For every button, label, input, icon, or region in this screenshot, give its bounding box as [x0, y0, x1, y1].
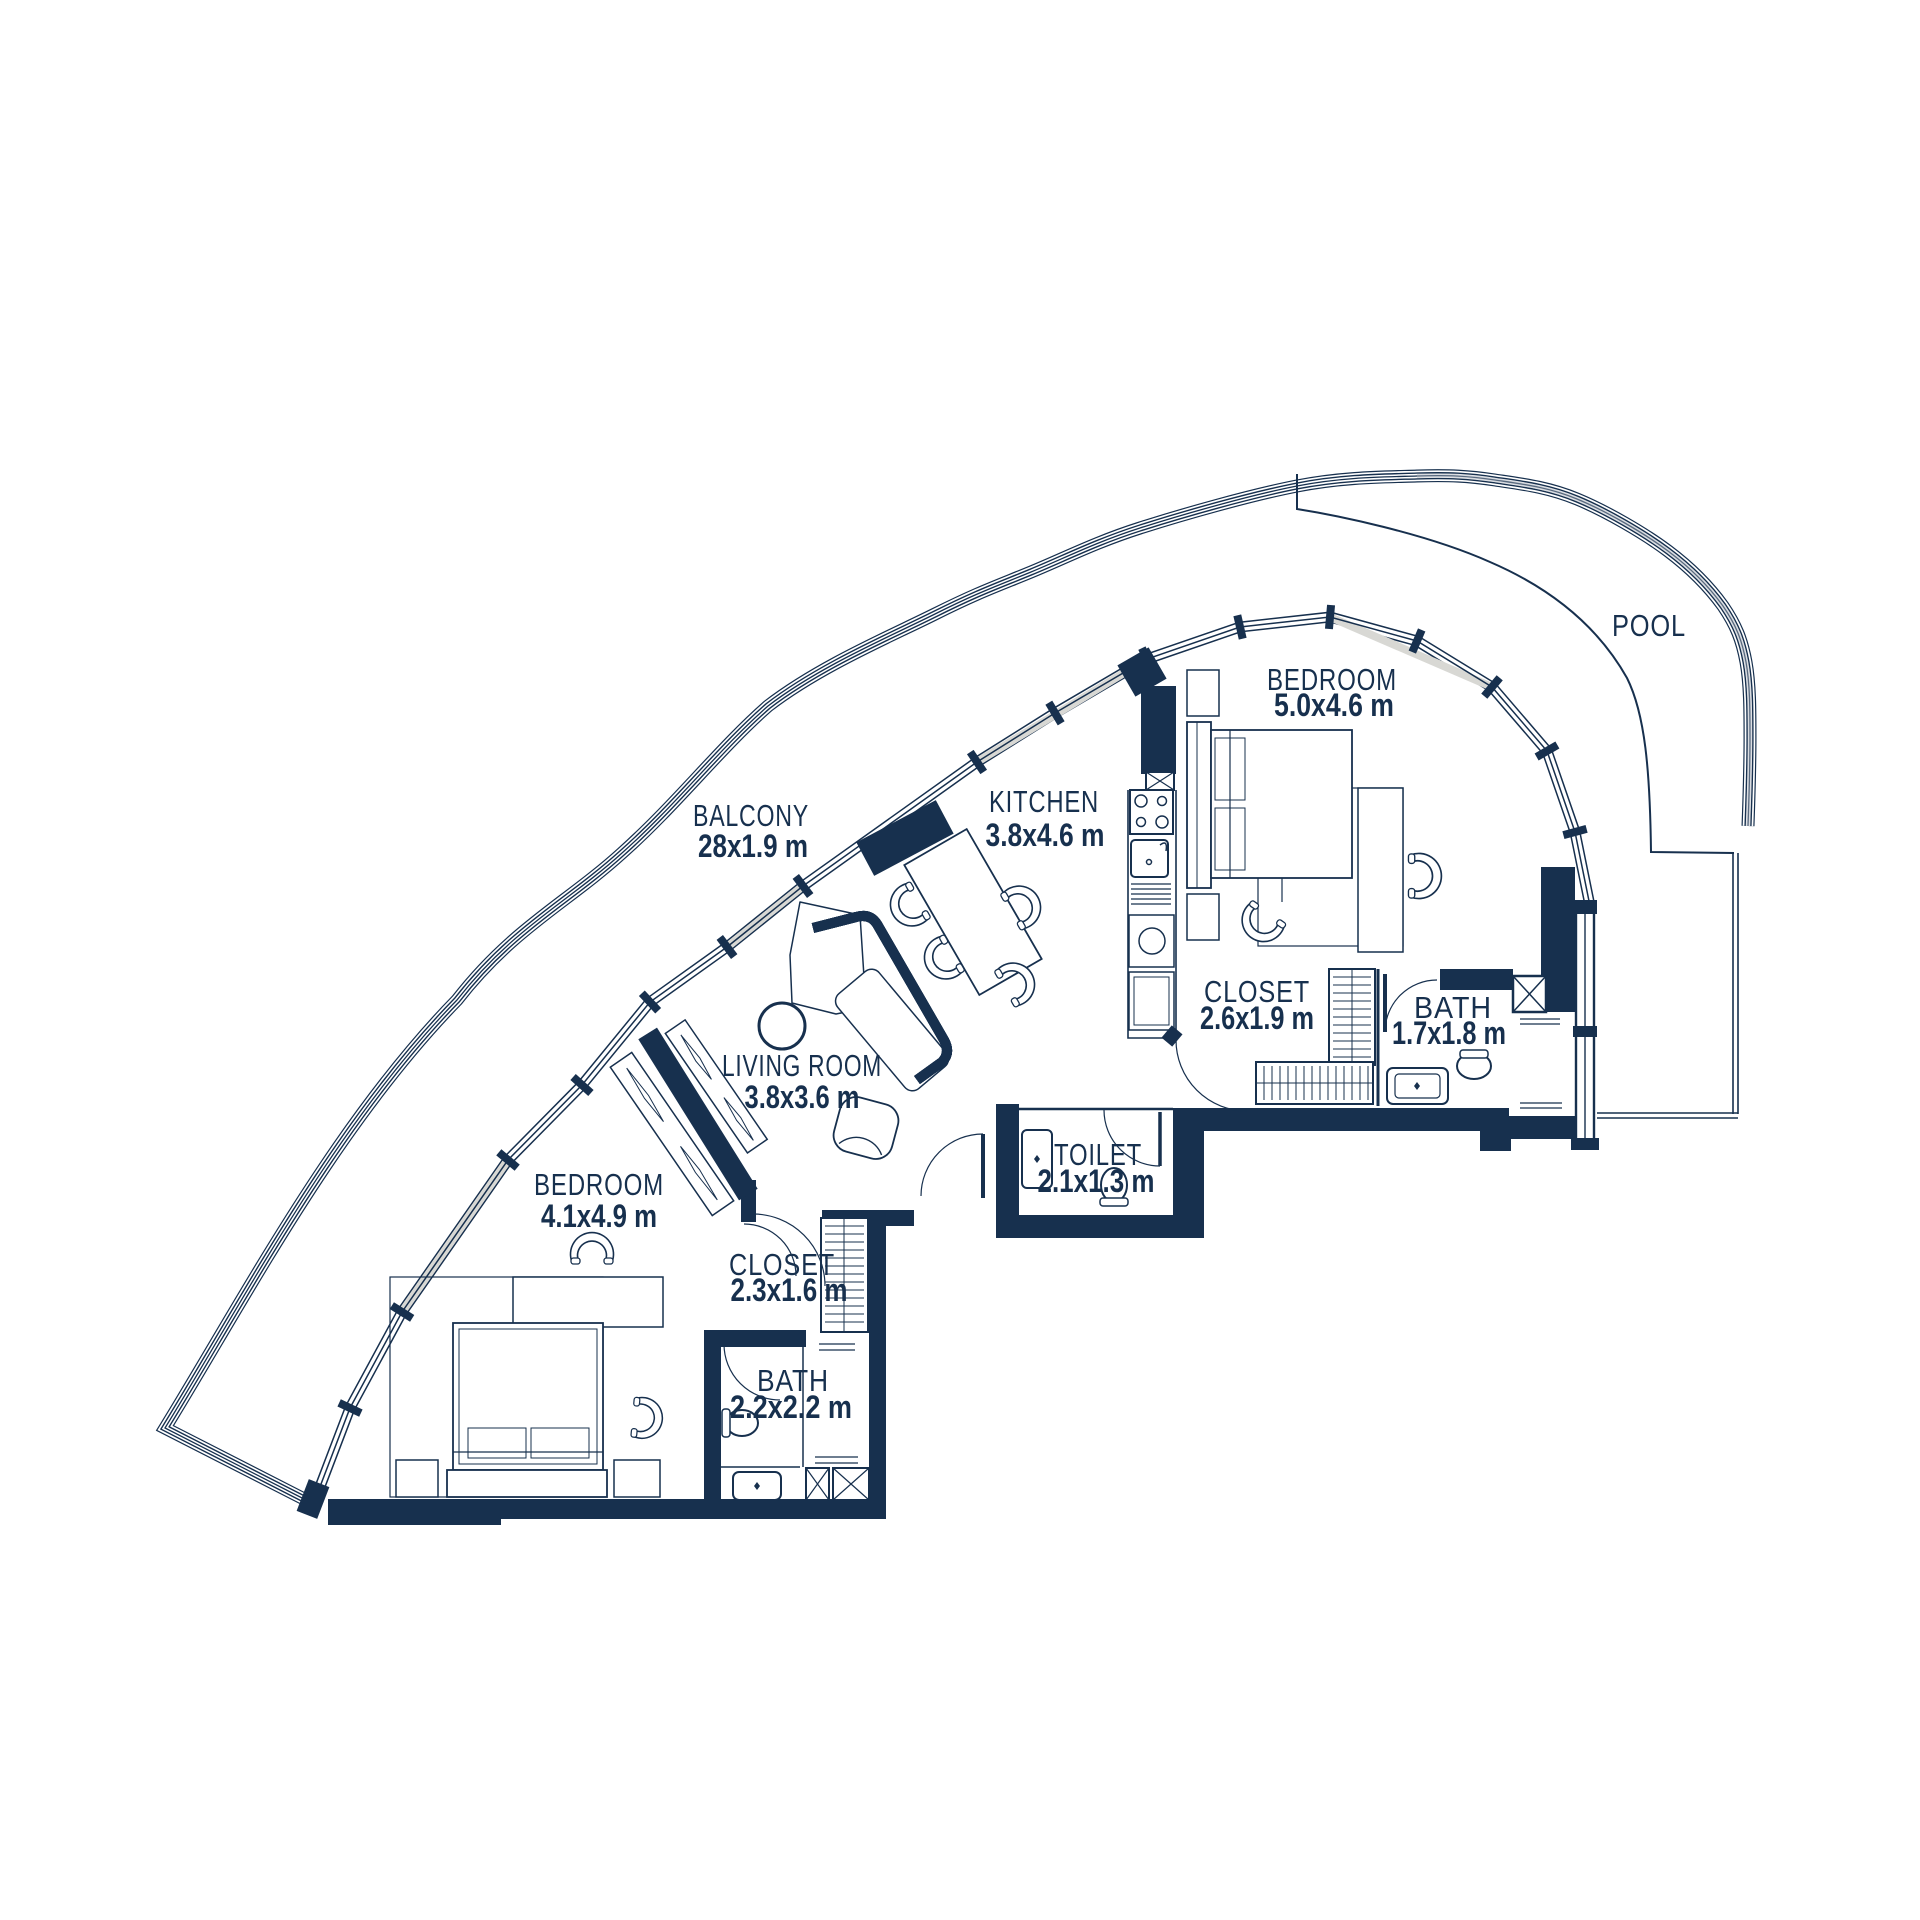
svg-text:5.0x4.6 m: 5.0x4.6 m: [1274, 687, 1394, 723]
svg-text:1.7x1.8 m: 1.7x1.8 m: [1392, 1015, 1506, 1051]
svg-text:3.8x3.6 m: 3.8x3.6 m: [745, 1079, 860, 1115]
svg-text:2.6x1.9 m: 2.6x1.9 m: [1200, 1000, 1314, 1036]
svg-text:2.2x2.2 m: 2.2x2.2 m: [730, 1389, 852, 1425]
svg-text:28x1.9 m: 28x1.9 m: [698, 828, 808, 864]
svg-text:2.1x1.3 m: 2.1x1.3 m: [1038, 1163, 1155, 1199]
svg-text:POOL: POOL: [1612, 608, 1686, 643]
svg-text:KITCHEN: KITCHEN: [989, 784, 1099, 819]
svg-text:4.1x4.9 m: 4.1x4.9 m: [541, 1198, 657, 1234]
svg-text:LIVING ROOM: LIVING ROOM: [722, 1048, 882, 1083]
svg-text:BEDROOM: BEDROOM: [534, 1167, 664, 1202]
svg-text:2.3x1.6 m: 2.3x1.6 m: [731, 1272, 848, 1308]
svg-text:3.8x4.6 m: 3.8x4.6 m: [986, 817, 1105, 853]
